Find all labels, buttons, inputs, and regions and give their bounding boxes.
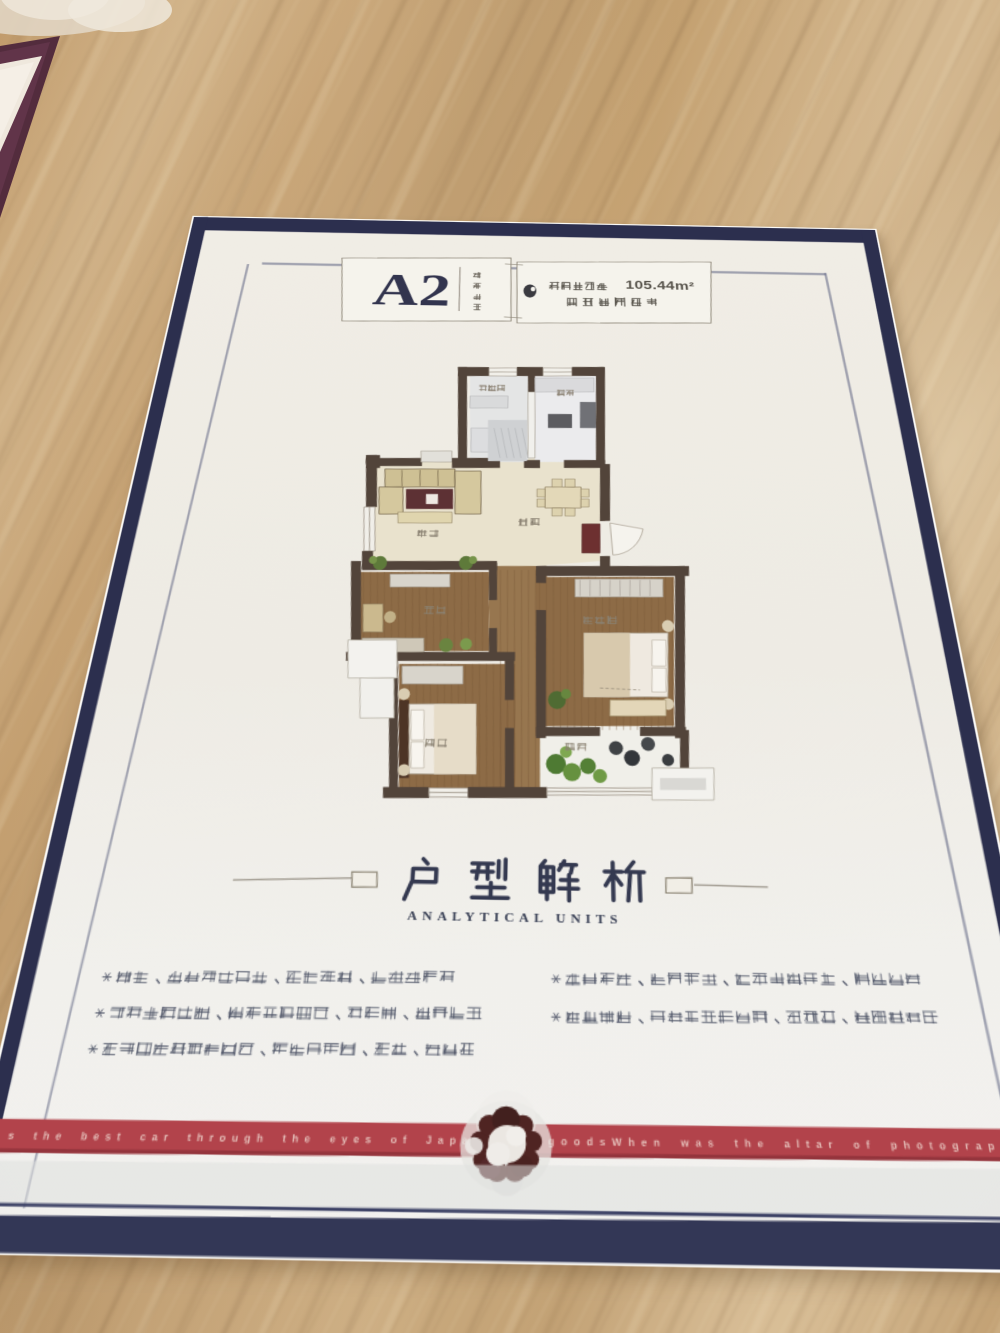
svg-text:ANALYTICAL UNITS: ANALYTICAL UNITS	[407, 908, 623, 927]
svg-text:105.44m²: 105.44m²	[625, 279, 695, 293]
svg-text:A2: A2	[371, 265, 453, 316]
